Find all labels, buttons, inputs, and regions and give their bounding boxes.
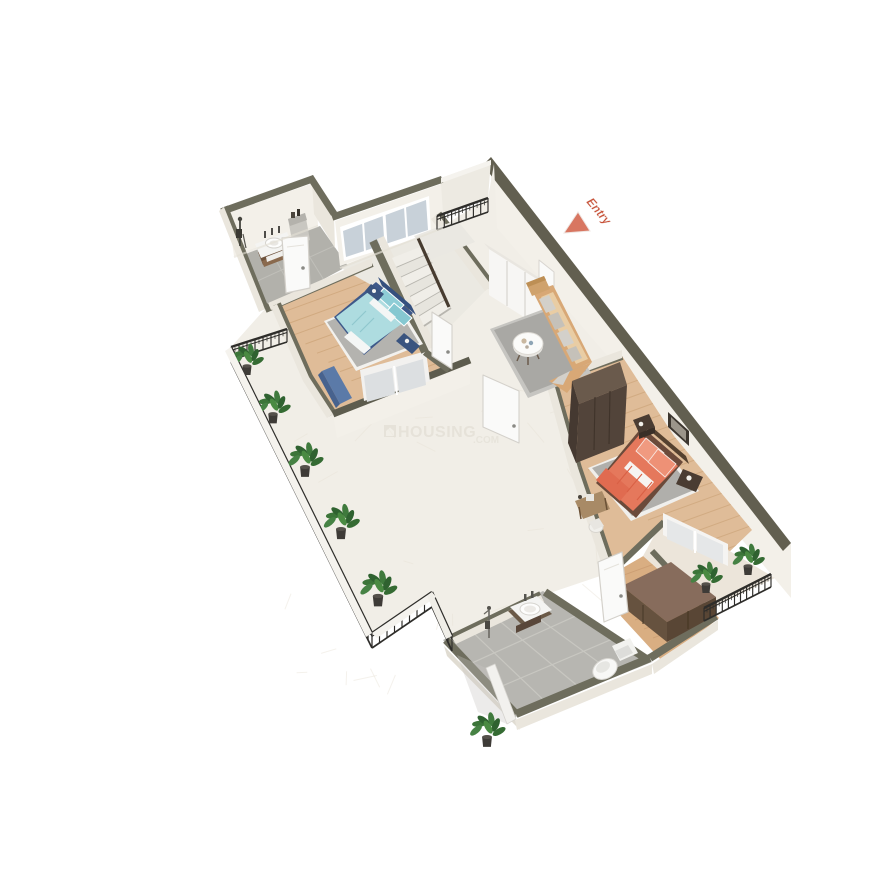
svg-text:.COM: .COM <box>473 435 499 446</box>
svg-text:HOUSING: HOUSING <box>398 424 476 441</box>
svg-text:Entry: Entry <box>584 195 615 229</box>
